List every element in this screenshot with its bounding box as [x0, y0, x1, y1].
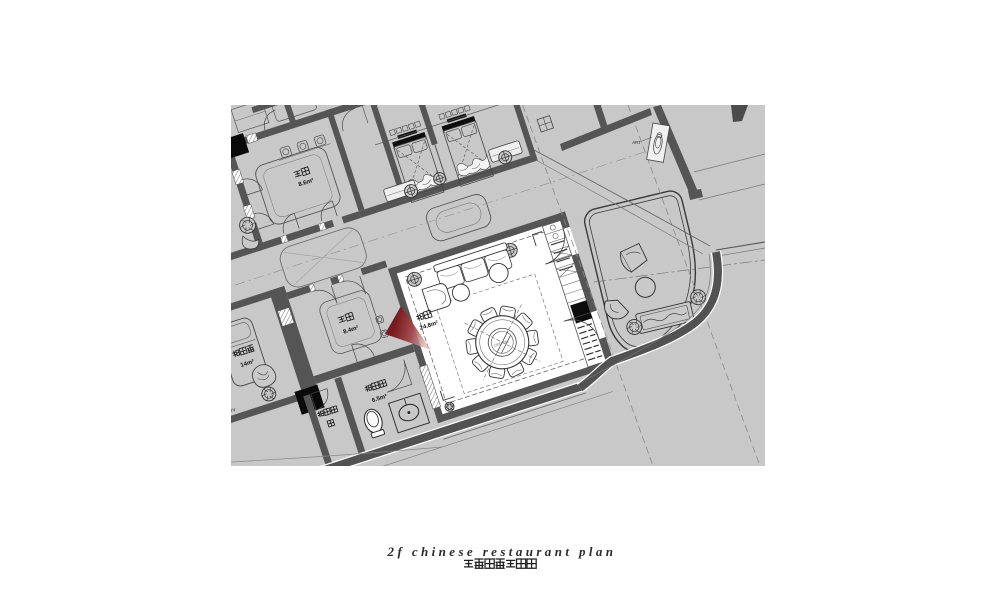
svg-text:ART: ART — [632, 140, 641, 145]
svg-text:2f chinese restaurant plan: 2f chinese restaurant plan — [387, 544, 617, 559]
